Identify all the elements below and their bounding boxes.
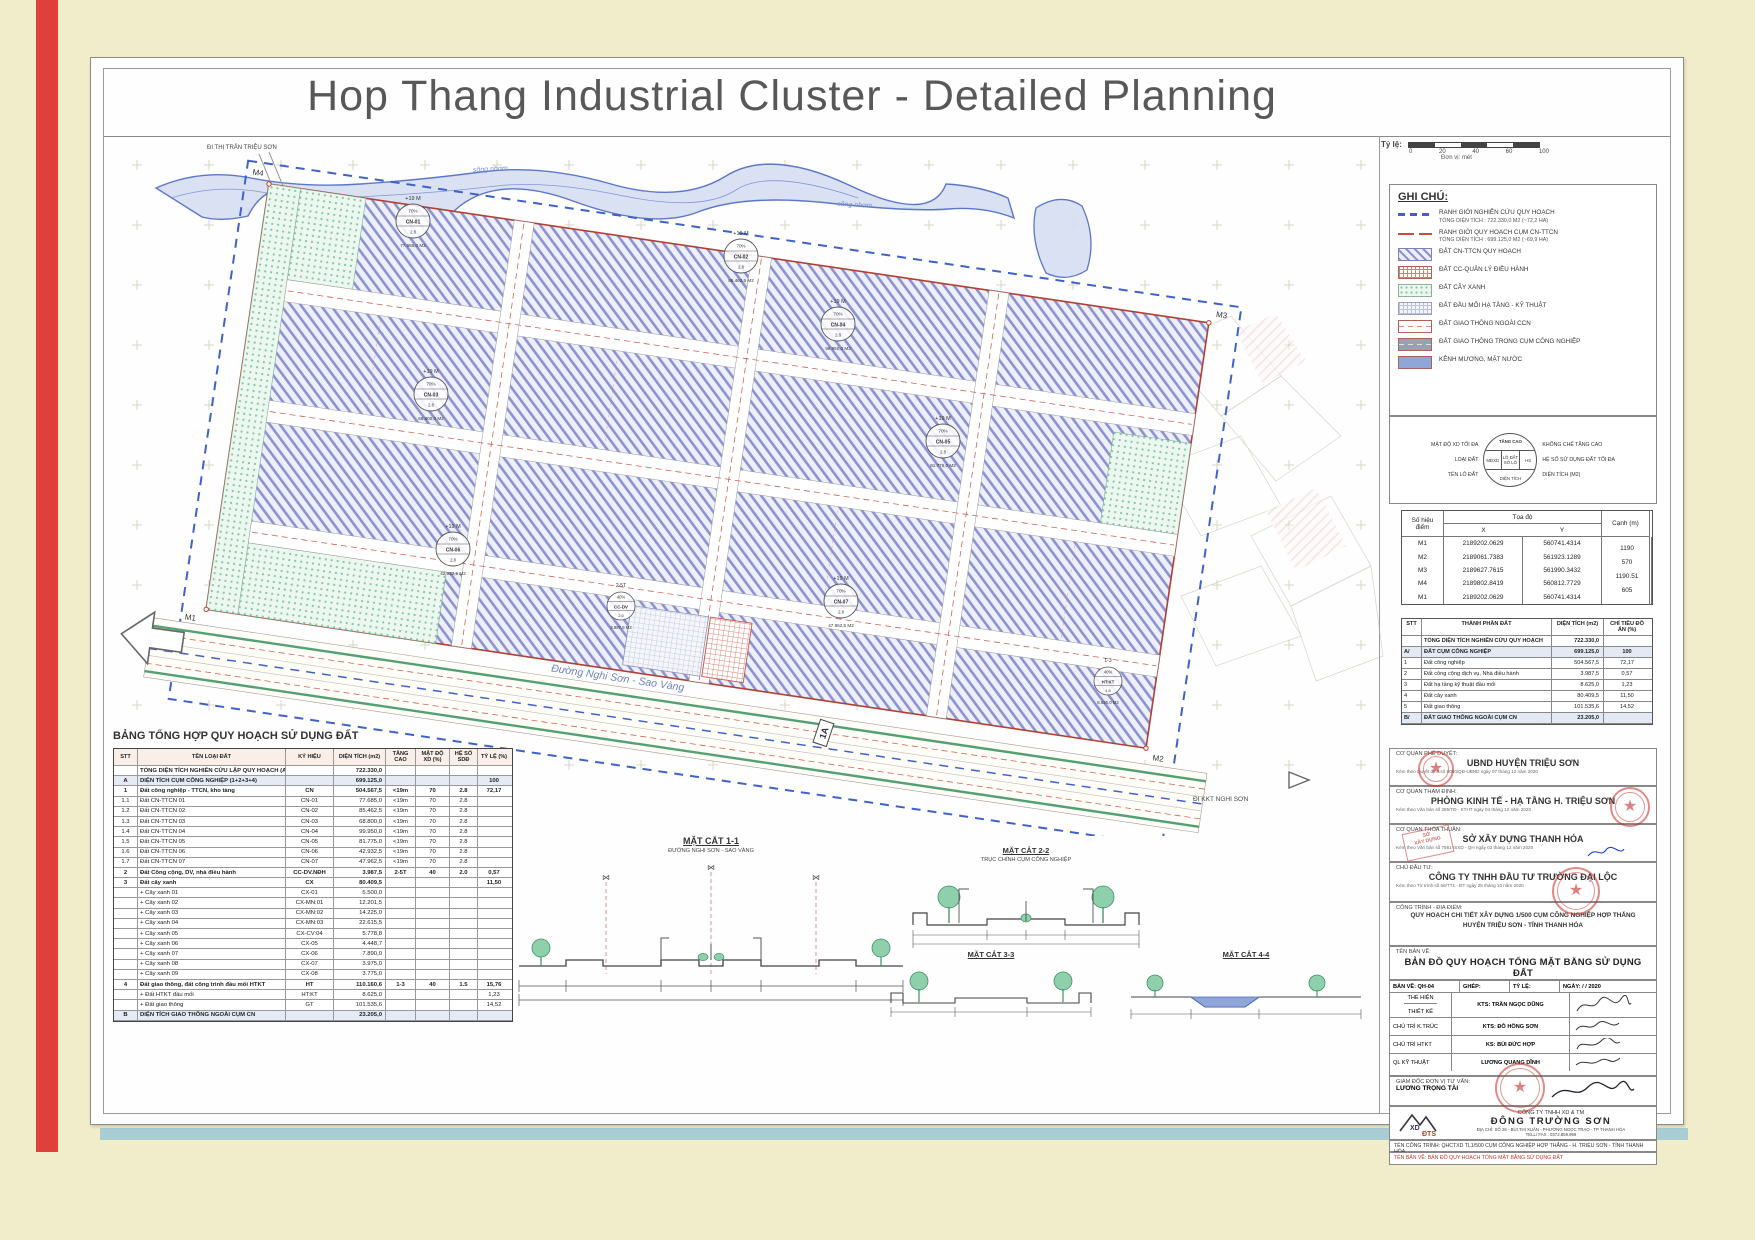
footer-project-line: TÊN CÔNG TRÌNH: QHCTXD TL1/500 CỤM CÔNG … [1389,1140,1657,1152]
svg-text:XD: XD [1410,1125,1420,1132]
cell-stt: B [114,1011,138,1020]
cell-name: Đất hạ tầng kỹ thuật đầu mối [1422,680,1552,690]
cell-floors: <19m [386,827,416,836]
cell-floors [386,939,416,948]
cell-far [450,888,478,897]
cell-floors [386,898,416,907]
cell-area: 85.462,5 [334,807,386,816]
cell-far [450,929,478,938]
cell-area: 5.500,0 [334,888,386,897]
legend-item: RANH GIỚI NGHIÊN CỨU QUY HOẠCH TỔNG DIỆN… [1398,209,1648,224]
cell-density [416,878,450,887]
legend-item: ĐẤT CÂY XANH [1398,284,1648,297]
cell-density [416,929,450,938]
cell-name: + Cây xanh 07 [138,949,286,958]
drawing-sheet: Hop Thang Industrial Cluster - Detailed … [90,57,1684,1125]
legend-label: ĐẤT CN-TTCN QUY HOẠCH [1439,248,1521,257]
corner-label-m2: M2 [1152,753,1165,764]
cell-ratio [478,960,510,969]
footer-drawing-line: TÊN BẢN VẼ: BẢN ĐỒ QUY HOẠCH TỔNG MẶT BẰ… [1389,1152,1657,1165]
cell-sym: CX [286,878,334,887]
cell-density: 40 [416,868,450,877]
cell-far: 2.8 [450,837,478,846]
key-lot: LÔ ĐẤT SỐ LÔ [1501,451,1519,470]
role-label: QL KỸ THUẬT [1390,1054,1452,1071]
h-sym: KÝ HIỆU [286,749,334,765]
cell-name: DIỆN TÍCH CỤM CÔNG NGHIỆP (1+2+3+4) [138,776,286,785]
legend-texts: RANH GIỚI QUY HOẠCH CỤM CN-TTCN TỔNG DIỆ… [1439,229,1558,244]
cell-stt [114,929,138,938]
cell-floors [386,929,416,938]
symbol-key: MẬT ĐỘ XD TỐI ĐA LOẠI ĐẤT TÊN LÔ ĐẤT TẦN… [1389,416,1657,504]
svg-text:CN-01: CN-01 [406,220,421,226]
cell-sym: CN-05 [286,837,334,846]
cell-sym: CX-06 [286,949,334,958]
cell-area: 80.409,5 [1552,691,1604,701]
legend-label: ĐẤT GIAO THÔNG NGOÀI CCN [1439,320,1531,329]
approval-block-chudautu: CHỦ ĐẦU TƯ: CÔNG TY TNHH ĐẦU TƯ TRƯỜNG Đ… [1389,862,1657,902]
h-ratio: TỶ LỆ (%) [478,749,510,765]
cell-density: 40 [416,980,450,989]
svg-text:77.685,0 M2: 77.685,0 M2 [400,243,426,248]
coords-point: M2 [1402,550,1444,563]
svg-text:2-5T: 2-5T [616,583,626,589]
svg-text:+19 M: +19 M [935,416,951,422]
cross-section-2: MẶT CẮT 2-2 TRỤC CHÍNH CỤM CÔNG NGHIỆP [901,846,1151,954]
cell-sym: CN-03 [286,817,334,826]
svg-text:3.987,5 M2: 3.987,5 M2 [610,625,632,630]
cell-density [416,939,450,948]
cell-sym: CX-01 [286,888,334,897]
cell-density [416,888,450,897]
cell-sym: CX-05 [286,939,334,948]
svg-text:2.8: 2.8 [450,558,456,563]
svg-text:2.8: 2.8 [410,230,416,235]
key-label: LOẠI ĐẤT [1431,457,1478,463]
composition-row: 1 Đất công nghiệp 504.567,5 72,17 [1402,658,1652,669]
person-name: KS: BÙI ĐỨC HỢP [1452,1036,1570,1053]
svg-text:2.8: 2.8 [940,450,946,455]
landuse-row: + Cây xanh 05 CX-CV:04 5.778,8 [114,929,512,939]
composition-row: A/ ĐẤT CỤM CÔNG NGHIỆP 699.125,0 100 [1402,647,1652,658]
key-density: MĐXD [1484,451,1501,470]
cell-far [450,909,478,918]
cell-ratio: 100 [478,776,510,785]
landuse-header: STT TÊN LOẠI ĐẤT KÝ HIỆU DIỆN TÍCH (m2) … [114,749,512,766]
cell-far [450,878,478,887]
cell-name: + Cây xanh 06 [138,939,286,948]
cell-area: 101.535,6 [334,1000,386,1009]
cell-density: 70 [416,786,450,795]
svg-text:HT:KT: HT:KT [1102,679,1115,684]
cell-ratio: 14,52 [478,1000,510,1009]
cell-stt: 2 [114,868,138,877]
cell-stt: A [114,776,138,785]
cell-area: 80.409,5 [334,878,386,887]
cell-ratio [478,929,510,938]
cell-name: Đất CN-TTCN 07 [138,858,286,867]
dimension-lines [519,980,903,1006]
cell-floors: 2-5T [386,868,416,877]
cell-far: 2.8 [450,858,478,867]
project-line2: HUYỆN TRIỆU SƠN - TỈNH THANH HÓA [1396,921,1650,931]
role-cell: THỂ HIỆN THIẾT KẾ [1390,993,1452,1017]
legend-swatch [1398,266,1432,279]
cell-density [416,949,450,958]
cell-floors [386,776,416,785]
cell-area: 4.448,7 [334,939,386,948]
landuse-row: + Cây xanh 02 CX-MN:01 12.201,5 [114,898,512,908]
cell-name: Đất giao thông [1422,702,1552,712]
cell-stt [114,990,138,999]
h-far: HỆ SỐ SDĐ [450,749,478,765]
coords-h-point: Số hiệu điểm [1402,511,1444,537]
legend-item: ĐẤT CC-QUẢN LÝ ĐIỀU HÀNH [1398,266,1648,279]
section-title: MẶT CẮT 3-3 [881,950,1101,959]
cell-name: TỔNG DIỆN TÍCH NGHIÊN CỨU LẬP QUY HOẠCH … [138,766,286,775]
cell-stt [114,970,138,979]
cell-sym: CN-04 [286,827,334,836]
svg-text:CN-03: CN-03 [424,393,439,399]
cell-density [416,776,450,785]
signature-cell [1570,1018,1654,1035]
svg-text:⋈: ⋈ [812,873,820,882]
official-stamp: ★ [1610,787,1650,827]
svg-text:42.932,5 M2: 42.932,5 M2 [440,571,466,576]
cell-far [450,919,478,928]
composition-row: 4 Đất cây xanh 80.409,5 11,50 [1402,691,1652,702]
cell-ratio: 11,50 [1604,691,1650,701]
svg-text:2.8: 2.8 [738,265,744,270]
legend: GHI CHÚ: RANH GIỚI NGHIÊN CỨU QUY HOẠCH … [1389,184,1657,416]
signature-cell [1570,1036,1654,1053]
cell-floors [386,970,416,979]
cell-area: 3.975,0 [334,960,386,969]
landuse-row: + Cây xanh 07 CX-06 7.890,0 [114,949,512,959]
cell-ratio [478,858,510,867]
landuse-row: + Cây xanh 01 CX-01 5.500,0 [114,888,512,898]
svg-text:+19 M: +19 M [733,231,749,237]
key-label: KHỐNG CHẾ TẦNG CAO [1542,442,1615,448]
cell-name: + Cây xanh 08 [138,960,286,969]
svg-text:+19 M: +19 M [445,524,461,530]
trees [1147,975,1325,997]
legend-swatch [1398,248,1432,261]
coords-body: M1 2189202.0629 560741.4314 M2 2189061.7… [1402,537,1652,604]
legend-texts: ĐẤT GIAO THÔNG NGOÀI CCN [1439,320,1531,329]
water-channel [1191,997,1259,1007]
cell-ratio [478,939,510,948]
cell-stt: 1.6 [114,848,138,857]
cell-name: Đất công nghiệp - TTCN, kho tàng [138,786,286,795]
composition-row: 5 Đất giao thông 101.535,6 14,52 [1402,702,1652,713]
cell-ratio [1604,636,1650,646]
cell-name: Đất CN-TTCN 04 [138,827,286,836]
stamp-star-icon: ★ [1513,1077,1527,1097]
svg-text:40%: 40% [1104,670,1113,675]
coords-point: M1 [1402,591,1444,604]
cell-density [416,990,450,999]
cell-ratio: 1,23 [478,990,510,999]
cell-stt: A/ [1402,647,1422,657]
cell-sym: CN-06 [286,848,334,857]
cell-stt [114,888,138,897]
coords-y: 560741.4314 [1523,537,1602,550]
tick: 60 [1506,149,1513,155]
svg-text:70%: 70% [938,429,947,434]
cell-ratio [478,807,510,816]
coords-point: M3 [1402,564,1444,577]
cell-ratio: 0,57 [1604,669,1650,679]
section-title: MẶT CẮT 1-1 [511,836,911,846]
landuse-row: + Đất HTKT đầu mối HT:KT 8.625,0 1,23 [114,990,512,1000]
cell-area: 8.625,0 [1552,680,1604,690]
cell-name: + Đất HTKT đầu mối [138,990,286,999]
cell-area: 504.567,5 [334,786,386,795]
cell-stt: 1 [114,786,138,795]
svg-text:47.962,5 M2: 47.962,5 M2 [828,623,854,628]
cell-area: 110.160,6 [334,980,386,989]
person-name: KTS: ĐỖ HỒNG SƠN [1452,1018,1570,1035]
cell-floors: <19m [386,848,416,857]
signature [1573,1038,1623,1051]
svg-text:2.8: 2.8 [838,610,844,615]
cell-ratio: 72,17 [1604,658,1650,668]
cell-far: 2.8 [450,807,478,816]
cell-stt: B/ [1402,713,1422,723]
company-stamp: ★ [1495,1063,1545,1113]
cell-stt: 1.4 [114,827,138,836]
sheet-join: GHÉP: [1460,981,1510,993]
signature [1573,1056,1623,1069]
cell-name: DIỆN TÍCH GIAO THÔNG NGOÀI CỤM CN [138,1011,286,1020]
cell-name: Đất cây xanh [138,878,286,887]
cell-ratio: 0,57 [478,868,510,877]
cell-name: Đất CN-TTCN 02 [138,807,286,816]
cell-area: 5.778,8 [334,929,386,938]
corner-label-m1: M1 [184,612,197,623]
cell-name: + Cây xanh 01 [138,888,286,897]
landuse-row: + Cây xanh 08 CX-07 3.975,0 [114,960,512,970]
cell-density: 70 [416,837,450,846]
svg-text:8.625,0 M2: 8.625,0 M2 [1097,700,1119,705]
landuse-row: 4 Đất giao thông, đất công trình đầu mối… [114,980,512,990]
landuse-row: 3 Đất cây xanh CX 80.409,5 11,50 [114,878,512,888]
cell-density [416,766,450,775]
cell-far [450,949,478,958]
cell-far [450,776,478,785]
landuse-row: + Cây xanh 06 CX-05 4.448,7 [114,939,512,949]
cell-name: TỔNG DIỆN TÍCH NGHIÊN CỨU QUY HOẠCH [1422,636,1552,646]
green-parcel-east [1100,432,1191,534]
cell-floors: <19m [386,858,416,867]
svg-text:85.462,5 M2: 85.462,5 M2 [728,278,754,283]
landuse-row: + Đất giao thông GT 101.535,6 14,52 [114,1000,512,1010]
official-stamp: ★ [1418,751,1454,787]
cell-sym: CN-01 [286,797,334,806]
cell-sym: CX-CV:04 [286,929,334,938]
cell-area: 77.685,0 [334,797,386,806]
svg-text:70%: 70% [736,244,745,249]
approval-note: Kèm theo Tờ trình số 68/TT1 - ĐT ngày 25… [1396,883,1650,888]
dimension-lines [913,930,1139,948]
legend-swatch [1398,356,1432,369]
cell-far: 2.0 [450,868,478,877]
coords-y: 561923.1289 [1523,550,1602,563]
cell-sym: GT [286,1000,334,1009]
coords-x: 2189802.8419 [1444,577,1523,590]
legend-texts: ĐẤT GIAO THÔNG TRONG CỤM CÔNG NGHIỆP [1439,338,1580,347]
key-mid-row: MĐXD LÔ ĐẤT SỐ LÔ HS [1484,451,1536,470]
cell-stt: 1.1 [114,797,138,806]
signature-cell [1570,993,1654,1017]
cell-name: + Cây xanh 05 [138,929,286,938]
director-signature [1548,1079,1638,1103]
cell-ratio: 11,50 [478,878,510,887]
coords-h-x: X [1444,524,1523,537]
legend-swatch [1398,213,1432,216]
signature [1573,1020,1623,1033]
green-parcel-northwest [287,189,366,290]
svg-text:⋈: ⋈ [602,873,610,882]
cell-stt: 1 [1402,658,1422,668]
cell-area: 12.201,5 [334,898,386,907]
cell-area: 722.330,0 [1552,636,1604,646]
landuse-row: + Cây xanh 03 CX-MN:02 14.225,0 [114,909,512,919]
signature [1573,995,1633,1015]
cell-floors [386,909,416,918]
cell-density [416,1000,450,1009]
cell-stt: 1.5 [114,837,138,846]
legend-sublabel: TỔNG DIỆN TÍCH : 722.330,0 M2 (~72,2 HA) [1439,218,1555,224]
svg-text:70%: 70% [426,382,435,387]
tick: 100 [1539,149,1549,155]
landuse-row: 1.1 Đất CN-TTCN 01 CN-01 77.685,0 <19m 7… [114,797,512,807]
cell-name: Đất công cộng dịch vụ, Nhà điều hành [1422,669,1552,679]
coords-x: 2189202.0629 [1444,537,1523,550]
cell-ratio [478,888,510,897]
legend-texts: ĐẤT CÂY XANH [1439,284,1485,293]
cell-area: 42.932,5 [334,848,386,857]
edge-value: 1190 [1601,545,1653,552]
cell-floors [386,919,416,928]
landuse-row: B DIỆN TÍCH GIAO THÔNG NGOÀI CỤM CN 23.2… [114,1011,512,1021]
title-block-row1: BẢN VẼ: QH-04 GHÉP: TỶ LỆ: NGÀY: / / 202… [1390,981,1656,993]
cell-far: 2.8 [450,827,478,836]
cell-floors [386,960,416,969]
cell-ratio [478,848,510,857]
cell-floors [386,766,416,775]
cell-floors [386,888,416,897]
cell-ratio: 15,76 [478,980,510,989]
landuse-row: 1.2 Đất CN-TTCN 02 CN-02 85.462,5 <19m 7… [114,807,512,817]
symbol-key-circle: TẦNG CAO MĐXD LÔ ĐẤT SỐ LÔ HS DIỆN TÍCH [1483,433,1537,487]
company-address: ĐỊA CHỈ: SỐ 26 - BÙI THỊ XUÂN - PHƯỜNG N… [1452,1127,1650,1132]
cell-far: 2.8 [450,848,478,857]
h-ratio: CHỈ TIÊU ĐỒ ÁN (%) [1604,619,1650,635]
cell-name: Đất công nghiệp [1422,658,1552,668]
scale-unit: Đơn vị: mét [1441,155,1651,161]
corner-label-m3: M3 [1215,310,1228,321]
stamp-star-icon: ★ [1623,796,1637,816]
coords-point: M1 [1402,537,1444,550]
cell-name: + Cây xanh 02 [138,898,286,907]
landuse-row: 1 Đất công nghiệp - TTCN, kho tàng CN 50… [114,786,512,796]
cell-sym: CC-DV.NĐH [286,868,334,877]
svg-text:+19 M: +19 M [833,576,849,582]
cell-name: + Đất giao thông [138,1000,286,1009]
edge-value: 570 [1601,559,1653,566]
cell-ratio [478,766,510,775]
cell-far: 2.8 [450,797,478,806]
composition-header: STT THÀNH PHẦN ĐẤT DIỆN TÍCH (m2) CHỈ TI… [1402,619,1652,636]
cell-area: 99.950,0 [334,827,386,836]
project-block: CÔNG TRÌNH - ĐỊA ĐIỂM: QUY HOẠCH CHI TIẾ… [1389,902,1657,946]
cell-floors [386,1000,416,1009]
direction-label-north: ĐI THỊ TRẤN TRIỆU SƠN [207,143,277,151]
cell-density: 70 [416,827,450,836]
cell-name: Đất Công cộng, DV, nhà điều hành [138,868,286,877]
key-label: HỆ SỐ SỬ DỤNG ĐẤT TỐI ĐA [1542,457,1615,463]
cell-stt [1402,636,1422,646]
cell-area: 47.962,5 [334,858,386,867]
cell-density [416,909,450,918]
legend-swatch [1398,284,1432,297]
cell-density [416,898,450,907]
legend-label: ĐẤT GIAO THÔNG TRONG CỤM CÔNG NGHIỆP [1439,338,1580,347]
cell-ratio [1604,713,1650,723]
tick: 0 [1409,149,1412,155]
direction-label-east: ĐI KKT NGHI SƠN [1193,796,1249,803]
cross-section-4: MẶT CẮT 4-4 [1121,950,1371,1028]
coords-y: 560741.4314 [1523,591,1602,604]
svg-text:70%: 70% [833,312,842,317]
svg-text:ĐTS: ĐTS [1422,1131,1436,1137]
legend-sublabel: TỔNG DIỆN TÍCH : 699.125,0 M2 (~69,9 HA) [1439,237,1558,243]
cell-sym: HT:KT [286,990,334,999]
drawing-number: BẢN VẼ: QH-04 [1390,981,1460,993]
legend-texts: ĐẤT CC-QUẢN LÝ ĐIỀU HÀNH [1439,266,1528,275]
svg-text:⋈: ⋈ [707,863,715,872]
cell-stt [114,1000,138,1009]
cell-ratio [478,949,510,958]
legend-item: KÊNH MƯƠNG, MẶT NƯỚC [1398,356,1648,369]
company-logo: XD ĐTS [1396,1109,1446,1137]
cell-area: 7.890,0 [334,949,386,958]
cell-density [416,919,450,928]
h-area: DIỆN TÍCH (m2) [1552,619,1604,635]
landuse-table: STT TÊN LOẠI ĐẤT KÝ HIỆU DIỆN TÍCH (m2) … [113,748,513,1022]
svg-text:CN-07: CN-07 [834,600,849,606]
cell-stt [114,919,138,928]
approval-block-thamdinh: CƠ QUAN THẨM ĐỊNH: PHÒNG KINH TẾ - HẠ TẦ… [1389,786,1657,824]
cell-far: 2.8 [450,786,478,795]
cell-density [416,1011,450,1020]
cell-stt: 1.2 [114,807,138,816]
page: { "page": {"title": "Hop Thang Industria… [0,0,1755,1240]
cell-stt [114,909,138,918]
cell-sym: HT [286,980,334,989]
cell-sym: CX-MN:01 [286,898,334,907]
company-phone: TELL/ FAX : 0372.859.959 [1452,1132,1650,1137]
key-floors: TẦNG CAO [1484,434,1536,451]
cell-area: 504.567,5 [1552,658,1604,668]
cell-ratio: 1,23 [1604,680,1650,690]
edge-value: 1190.51 [1601,573,1653,580]
coords-x: 2189202.0629 [1444,591,1523,604]
cell-area: 722.330,0 [334,766,386,775]
legend-item: ĐẤT CN-TTCN QUY HOẠCH [1398,248,1648,261]
